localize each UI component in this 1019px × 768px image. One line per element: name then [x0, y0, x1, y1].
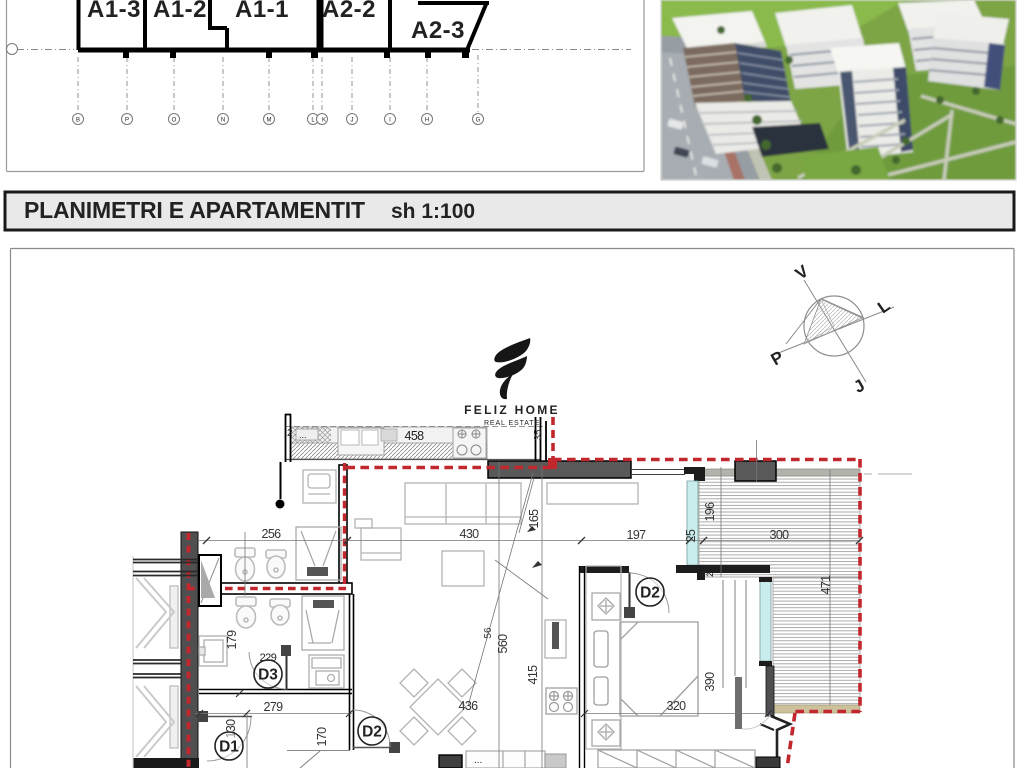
svg-text:430: 430: [459, 527, 479, 541]
svg-text:A2-3: A2-3: [411, 17, 465, 44]
svg-text:REAL ESTATE: REAL ESTATE: [484, 420, 540, 427]
svg-text:471: 471: [819, 575, 833, 595]
svg-text:196: 196: [703, 502, 717, 522]
svg-text:560: 560: [496, 634, 510, 654]
svg-text:A1-1: A1-1: [235, 0, 289, 23]
svg-text:PLANIMETRI E APARTAMENTIT: PLANIMETRI E APARTAMENTIT: [24, 197, 365, 223]
svg-text:K: K: [322, 118, 326, 124]
svg-text:35: 35: [533, 429, 544, 441]
svg-text:H: H: [425, 118, 429, 124]
svg-text:320: 320: [666, 699, 686, 713]
svg-text:300: 300: [769, 528, 789, 542]
svg-text:D1: D1: [219, 739, 239, 756]
svg-text:...: ...: [474, 755, 482, 766]
svg-text:56: 56: [483, 627, 494, 639]
svg-text:J: J: [850, 376, 868, 397]
svg-text:D3: D3: [258, 667, 278, 684]
svg-text:D2: D2: [640, 585, 660, 602]
svg-text:256: 256: [261, 527, 281, 541]
svg-text:V: V: [792, 261, 813, 283]
svg-text:A1-3: A1-3: [87, 0, 141, 23]
svg-text:390: 390: [703, 672, 717, 692]
svg-text:2: 2: [287, 428, 293, 439]
svg-text:N: N: [221, 118, 225, 124]
svg-text:279: 279: [263, 700, 283, 714]
svg-text:25: 25: [684, 529, 698, 542]
svg-text:FELIZ HOME: FELIZ HOME: [464, 403, 560, 417]
svg-text:A2-2: A2-2: [322, 0, 376, 23]
svg-text:D2: D2: [362, 724, 382, 741]
svg-text:170: 170: [315, 727, 329, 747]
svg-text:J: J: [351, 118, 354, 124]
svg-text:M: M: [267, 118, 272, 124]
svg-text:415: 415: [526, 665, 540, 685]
svg-text:436: 436: [458, 699, 478, 713]
svg-text:179: 179: [225, 630, 239, 650]
svg-text:P: P: [125, 118, 129, 124]
svg-text:197: 197: [626, 528, 646, 542]
svg-text:458: 458: [404, 429, 424, 443]
svg-text:165: 165: [527, 509, 541, 529]
svg-text:...: ...: [299, 430, 307, 440]
svg-text:sh 1:100: sh 1:100: [391, 200, 475, 223]
svg-text:O: O: [172, 118, 177, 124]
svg-text:25: 25: [705, 567, 715, 577]
svg-text:G: G: [476, 118, 481, 124]
svg-text:B: B: [76, 118, 80, 124]
svg-text:A1-2: A1-2: [153, 0, 207, 23]
